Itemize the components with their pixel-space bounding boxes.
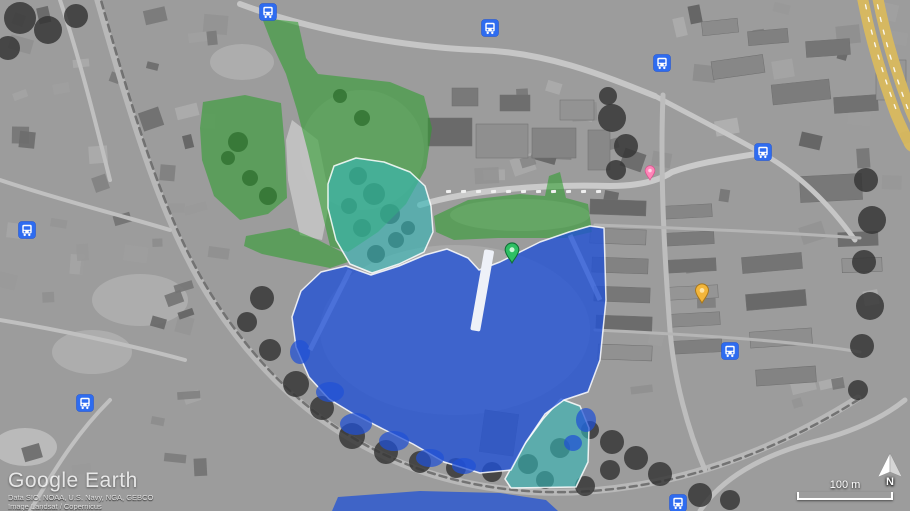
bus-stop-icon[interactable]: [755, 144, 772, 161]
map-canvas[interactable]: Google Earth Data SIO, NOAA, U.S. Navy, …: [0, 0, 910, 511]
texture-block: [771, 59, 795, 80]
attribution-line-2: Image Landsat / Copernicus: [8, 502, 153, 511]
overlay-blue-blob[interactable]: [316, 382, 344, 402]
tree-blob: [600, 430, 624, 454]
tree-blob: [688, 483, 712, 507]
parked-car: [536, 190, 541, 193]
parked-car: [461, 190, 466, 193]
overlay-blue-blob[interactable]: [379, 431, 409, 451]
bus-stop-icon[interactable]: [670, 495, 687, 511]
building-block: [428, 118, 472, 146]
bus-stop-icon[interactable]: [77, 395, 94, 412]
parked-car: [476, 190, 481, 193]
tree-blob: [259, 339, 281, 361]
tree-blob: [614, 134, 638, 158]
tree-blob: [624, 446, 648, 470]
texture-block: [474, 167, 499, 184]
building-block: [664, 231, 715, 247]
building-block: [672, 339, 723, 355]
texture-block: [831, 377, 845, 390]
north-arrow-icon: [877, 452, 903, 478]
overlay-blue-blob[interactable]: [416, 449, 444, 467]
attribution-line-1: Data SIO, NOAA, U.S. Navy, NGA, GEBCO: [8, 493, 153, 502]
bus-stop-icon[interactable]: [260, 4, 277, 21]
parked-car: [551, 190, 556, 193]
texture-block: [76, 244, 89, 261]
parked-car: [491, 190, 496, 193]
tree-blob: [250, 286, 274, 310]
bus-stop-icon[interactable]: [19, 222, 36, 239]
tree-blob: [64, 4, 88, 28]
building-block: [670, 312, 721, 328]
building-block: [588, 130, 610, 170]
parked-car: [446, 190, 451, 193]
building-block: [500, 95, 530, 111]
overlay-blue-blob[interactable]: [564, 435, 582, 451]
parked-car: [521, 190, 526, 193]
texture-block: [159, 164, 175, 181]
tree-blob: [34, 16, 62, 44]
building-block: [666, 258, 717, 274]
building-block: [590, 199, 646, 216]
map-attribution: Data SIO, NOAA, U.S. Navy, NGA, GEBCO Im…: [8, 493, 153, 511]
parked-car: [596, 190, 601, 193]
google-earth-watermark: Google Earth: [8, 469, 138, 493]
building-block: [532, 128, 576, 158]
tree-blob: [858, 206, 886, 234]
building-block: [452, 88, 478, 106]
compass-north[interactable]: N: [877, 452, 903, 488]
parked-car: [506, 190, 511, 193]
texture-block: [42, 292, 54, 303]
building-block: [598, 344, 652, 361]
tree-blob: [854, 168, 878, 192]
overlay-blue-blob[interactable]: [452, 458, 476, 474]
bus-stop-icon[interactable]: [654, 55, 671, 72]
texture-block: [719, 189, 731, 203]
parked-car: [566, 190, 571, 193]
texture-block: [18, 131, 35, 149]
tree-blob: [599, 87, 617, 105]
texture-block: [856, 148, 870, 168]
tree-blob: [237, 312, 257, 332]
building-block: [805, 38, 850, 57]
tree-blob: [720, 490, 740, 510]
building-block: [668, 285, 719, 301]
building-block: [833, 94, 878, 113]
tree-blob: [4, 2, 36, 34]
tree-blob: [848, 380, 868, 400]
texture-block: [152, 238, 162, 247]
scale-line: [797, 492, 893, 500]
tree-blob: [283, 371, 309, 397]
building-block: [476, 124, 528, 158]
texture-block: [177, 391, 200, 400]
satellite-map-art: [0, 0, 910, 511]
compass-label: N: [877, 476, 903, 488]
texture-block: [80, 258, 98, 276]
bus-stop-icon[interactable]: [722, 343, 739, 360]
parked-car: [581, 190, 586, 193]
tree-blob: [856, 292, 884, 320]
texture-block: [206, 31, 217, 46]
texture-block: [194, 458, 208, 476]
building-block: [560, 100, 594, 120]
building-block: [662, 204, 713, 220]
overlay-blue-blob[interactable]: [340, 413, 372, 435]
tree-blob: [598, 104, 626, 132]
texture-block: [882, 175, 902, 190]
tree-blob: [606, 160, 626, 180]
overlay-blue-blob[interactable]: [290, 340, 310, 364]
bus-stop-icon[interactable]: [482, 20, 499, 37]
tree-blob: [600, 460, 620, 480]
overlay-blue-blob[interactable]: [576, 408, 596, 432]
texture-block: [123, 244, 149, 263]
tree-blob: [852, 250, 876, 274]
tree-blob: [850, 334, 874, 358]
tree-blob: [648, 462, 672, 486]
